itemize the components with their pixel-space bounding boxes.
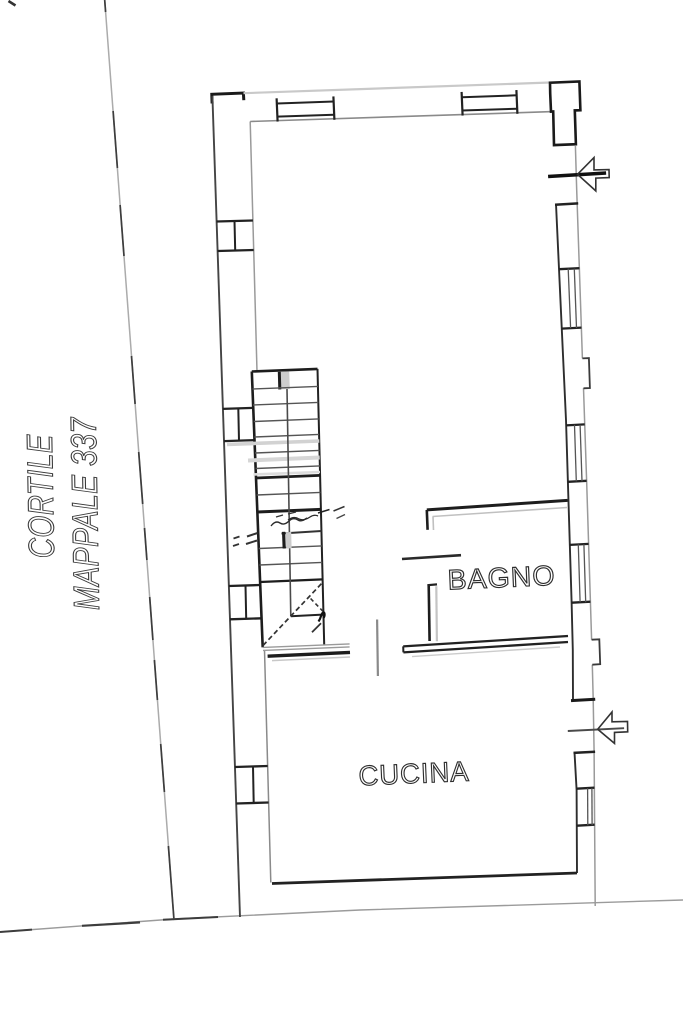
svg-text:CUCINA: CUCINA [358, 756, 470, 792]
svg-text:CORTILE: CORTILE [19, 433, 62, 558]
svg-text:BAGNO: BAGNO [447, 560, 556, 596]
svg-text:MAPPALE 337: MAPPALE 337 [63, 416, 107, 611]
